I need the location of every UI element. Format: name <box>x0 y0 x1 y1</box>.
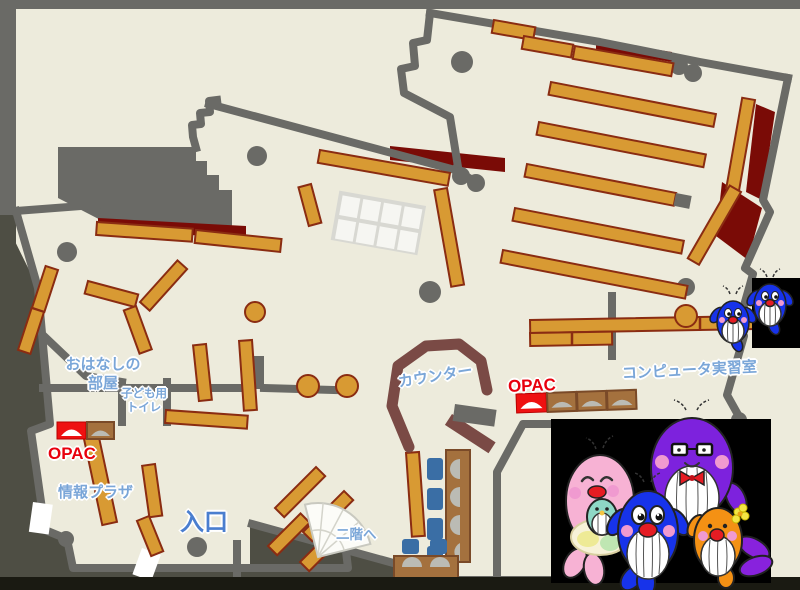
pillar <box>58 531 74 547</box>
chair <box>402 539 419 554</box>
label-entrance: 入口 <box>180 508 228 538</box>
pillar <box>684 64 702 82</box>
label-kids-toilet: 子ども用 トイレ <box>115 387 173 416</box>
chair <box>427 488 443 510</box>
pillar <box>451 51 473 73</box>
pillar <box>419 281 441 303</box>
pillar <box>187 537 207 557</box>
label-opac-left: OPAC <box>48 443 96 464</box>
round-table <box>297 375 319 397</box>
round-table <box>245 302 265 322</box>
mascot-family-photo <box>551 400 775 590</box>
label-opac-right: OPAC <box>508 374 557 397</box>
chair <box>427 518 443 540</box>
pillar <box>467 174 485 192</box>
library-floor-map: おはなしの 部屋 子ども用 トイレ OPAC 情報プラザ 入口 二階へ カウンタ… <box>0 0 800 590</box>
pillar <box>57 242 77 262</box>
round-table <box>336 375 358 397</box>
opac-terminal-left <box>57 422 114 439</box>
pillar <box>247 146 267 166</box>
round-table <box>675 305 697 327</box>
chair <box>430 539 447 554</box>
label-to-second-floor: 二階へ <box>336 527 377 544</box>
label-info-plaza: 情報プラザ <box>58 484 133 503</box>
chair <box>427 458 443 480</box>
